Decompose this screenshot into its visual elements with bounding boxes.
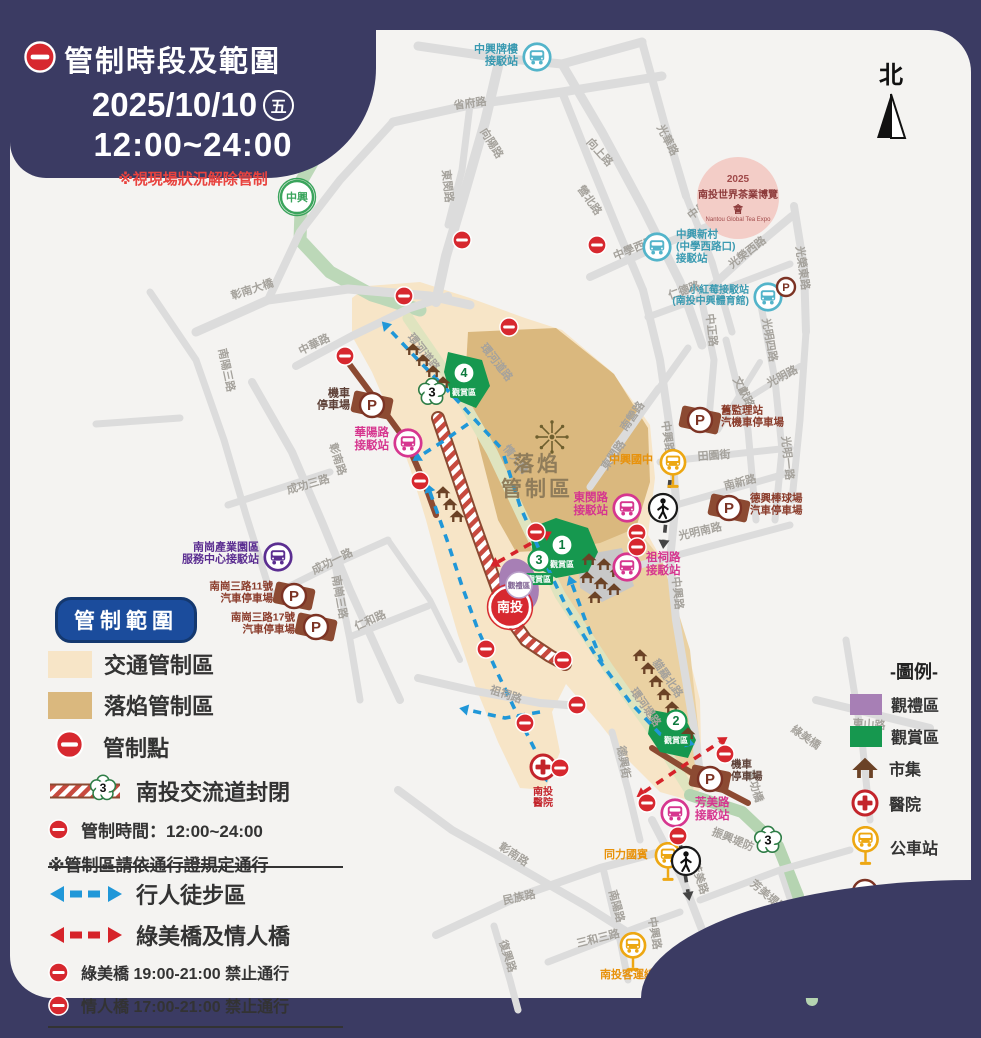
north-indicator: 北: [871, 55, 911, 147]
svg-text:P: P: [367, 397, 377, 414]
legend-label: 觀賞區: [891, 724, 939, 748]
legend-label: 管制點: [103, 731, 169, 763]
no-entry-control-point-icon: [526, 522, 546, 542]
header: 管制時段及範圍 2025/10/10 五 12:00~24:00 ※視現場狀況解…: [18, 38, 368, 189]
shuttle-label: 華陽路 接駁站: [355, 427, 390, 453]
svg-text:3: 3: [536, 553, 543, 567]
road: [96, 418, 180, 424]
no-entry-control-point-icon: [335, 346, 355, 366]
svg-text:P: P: [724, 500, 734, 517]
expo-year: 2025: [697, 174, 779, 185]
parking-icon: P: [774, 274, 798, 300]
parking-label: 德興棒球場 汽車停車場: [750, 493, 803, 517]
road-label: 田園街: [697, 446, 731, 464]
shuttle-label: 中興新村 (中學西路口) 接駁站: [676, 229, 736, 264]
road: [436, 852, 660, 935]
shuttle-station-icon: [612, 493, 643, 524]
no-entry-control-point-icon: [394, 286, 414, 306]
market-tent-icon: [606, 582, 623, 597]
legend-label: 落焰管制區: [104, 689, 214, 721]
no-entry-icon: [24, 41, 56, 78]
shuttle-label: 祖祠路 接駁站: [646, 552, 681, 578]
shuttle-label: 南崗產業園區 服務中心接駁站: [182, 542, 259, 567]
freeway-3-shield: 3: [752, 824, 784, 856]
busstop-label: 同力國賓: [604, 849, 648, 861]
svg-text:3: 3: [428, 384, 435, 399]
viewing-zone-badge: 2觀賞區: [659, 709, 693, 753]
no-entry-control-point-icon: [410, 471, 430, 491]
legend-right-title: -圖例-: [850, 658, 978, 684]
legend-label: 醫院: [889, 791, 921, 815]
control-time: 12:00~24:00: [18, 126, 368, 164]
parking-icon: P: [349, 389, 395, 421]
svg-text:P: P: [289, 588, 299, 605]
legend-item: 管制點: [48, 730, 358, 764]
freeway-3-shield: 3: [416, 376, 448, 408]
no-entry-control-point-icon: [499, 317, 519, 337]
shuttle-label: 東閔路 接駁站: [574, 492, 609, 518]
viewing-zone-badge: 4觀賞區: [447, 361, 481, 405]
legend-label: 交通管制區: [104, 648, 214, 680]
legend-item: 交通管制區: [48, 648, 358, 680]
parking-label: 南崗三路11號 汽車停車場: [209, 581, 273, 605]
legend-label: 南投交流道封閉: [136, 775, 290, 807]
shuttle-label: 芳美路 接駁站: [695, 797, 730, 823]
legend-item: 管制時間：12:00~24:00: [48, 817, 358, 842]
legend-label: 管制時間：12:00~24:00: [81, 817, 263, 842]
expo-subtitle: Nantou Global Tea Expo: [697, 217, 779, 223]
busstop-label: 中興國中: [609, 454, 653, 466]
parking-label: 機車 停車場: [731, 759, 763, 783]
legend-label: 綠美橋 19:00-21:00 禁止通行: [81, 960, 289, 984]
expo-title: 南投世界茶業博覽會: [697, 186, 779, 216]
svg-text:3: 3: [764, 832, 771, 847]
header-note: ※視現場狀況解除管制: [18, 168, 368, 189]
legend-item: 公車站: [850, 826, 978, 868]
svg-text:4: 4: [461, 366, 468, 380]
svg-text:觀賞區: 觀賞區: [452, 387, 476, 397]
svg-text:觀賞區: 觀賞區: [664, 735, 688, 745]
legend-item: 行人徒步區: [48, 878, 358, 910]
bus-stop-icon: [658, 449, 689, 491]
no-entry-control-point-icon: [476, 639, 496, 659]
shuttle-label: 小紅莓接駁站 (南投中興體育館): [672, 285, 749, 307]
legend-label: 綠美橋及情人橋: [136, 919, 290, 951]
parking-icon: P: [293, 611, 339, 643]
bus-stop-icon: [618, 932, 649, 974]
parking-icon: P: [677, 404, 723, 436]
legend-left: 交通管制區落焰管制區管制點3南投交流道封閉管制時間：12:00~24:00※管制…: [48, 648, 358, 885]
north-label: 北: [871, 55, 911, 90]
no-entry-control-point-icon: [637, 793, 657, 813]
north-arrow-icon: [871, 90, 911, 142]
no-entry-control-point-icon: [550, 758, 570, 778]
weekday-badge: 五: [263, 90, 294, 121]
hospital-label: 南投 醫院: [533, 787, 553, 809]
no-entry-control-point-icon: [567, 695, 587, 715]
legend-item: 市集: [850, 756, 978, 780]
legend-label: 觀禮區: [891, 692, 939, 716]
pedestrian-crossing-icon: [647, 492, 680, 525]
parking-label: 機車 停車場: [317, 388, 350, 413]
svg-text:P: P: [311, 619, 321, 636]
svg-text:P: P: [782, 282, 790, 294]
road-label: 東閔路: [438, 169, 457, 203]
ceremony-zone-badge: 觀禮區: [504, 570, 534, 600]
shuttle-station-icon: [642, 232, 673, 263]
legend-label: 公車站: [890, 835, 938, 859]
no-entry-control-point-icon: [515, 713, 535, 733]
flame-control-zone-label: 落焰管制區: [501, 452, 573, 502]
control-range-title: 管制範圍: [55, 597, 197, 643]
svg-text:2: 2: [673, 714, 680, 728]
shuttle-label: 中興牌樓 接駁站: [474, 44, 518, 69]
road-label: 中正路: [702, 313, 721, 347]
legend-item: 落焰管制區: [48, 689, 358, 721]
road: [393, 76, 662, 122]
shuttle-station-icon: [660, 798, 691, 829]
page-title: 管制時段及範圍: [64, 38, 281, 80]
market-tent-icon: [587, 590, 604, 605]
tea-expo-logo: 2025 南投世界茶業博覽會 Nantou Global Tea Expo: [697, 157, 779, 239]
parking-icon: P: [271, 580, 317, 612]
parking-icon: P: [687, 763, 733, 795]
legend-divider: [48, 866, 343, 868]
road-label: 中興路: [668, 576, 687, 610]
svg-text:P: P: [705, 771, 715, 788]
legend-label: 行人徒步區: [136, 878, 246, 910]
path-arrowhead: [459, 705, 469, 716]
legend-label: 情人橋 17:00-21:00 禁止通行: [81, 993, 289, 1017]
legend-item: 綠美橋 19:00-21:00 禁止通行: [48, 960, 358, 984]
parking-label: 南崗三路17號 汽車停車場: [231, 612, 295, 636]
no-entry-control-point-icon: [715, 744, 735, 764]
control-date: 2025/10/10: [92, 86, 257, 124]
legend-item: 醫院: [850, 788, 978, 818]
svg-text:3: 3: [100, 781, 107, 795]
no-entry-control-point-icon: [452, 230, 472, 250]
shuttle-station-icon: [263, 542, 294, 573]
no-entry-control-point-icon: [587, 235, 607, 255]
legend-item: 3南投交流道封閉: [48, 773, 358, 808]
legend-label: 市集: [889, 756, 921, 780]
svg-text:1: 1: [559, 538, 566, 552]
no-entry-control-point-icon: [553, 650, 573, 670]
svg-text:P: P: [695, 412, 705, 429]
shuttle-station-icon: [522, 42, 553, 73]
no-entry-control-point-icon: [668, 826, 688, 846]
legend-item: 情人橋 17:00-21:00 禁止通行: [48, 993, 358, 1017]
svg-text:觀禮區: 觀禮區: [508, 580, 531, 590]
parking-icon: P: [706, 492, 752, 524]
svg-text:南投: 南投: [497, 600, 523, 615]
road: [642, 42, 686, 196]
market-tent-icon: [449, 509, 466, 524]
legend-item: 觀賞區: [850, 724, 978, 748]
svg-text:中興: 中興: [286, 190, 308, 204]
shuttle-station-icon: [393, 428, 424, 459]
legend-walk: 行人徒步區綠美橋及情人橋綠美橋 19:00-21:00 禁止通行情人橋 17:0…: [48, 862, 358, 1038]
legend-item: 觀禮區: [850, 692, 978, 716]
parking-label: 舊監理站 汽機車停車場: [721, 405, 784, 429]
pedestrian-crossing-icon: [670, 845, 703, 878]
no-entry-control-point-icon: [627, 537, 647, 557]
legend-item: 綠美橋及情人橋: [48, 919, 358, 951]
legend-divider: [48, 1026, 343, 1028]
